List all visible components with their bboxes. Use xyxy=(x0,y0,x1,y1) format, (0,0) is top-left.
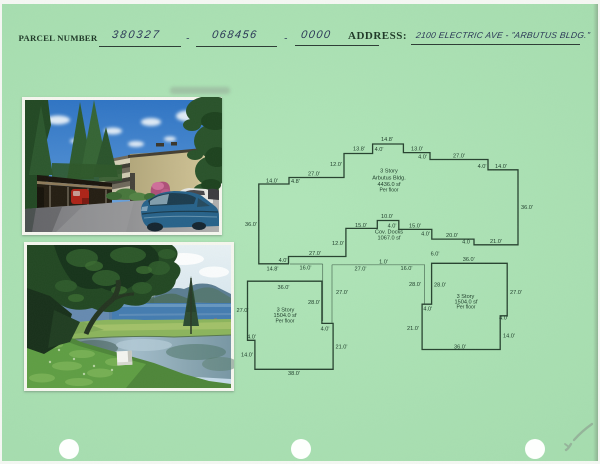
svg-text:27.0': 27.0' xyxy=(309,251,321,257)
svg-text:36.0': 36.0' xyxy=(454,345,466,351)
svg-text:38.0': 38.0' xyxy=(288,371,300,377)
svg-text:27.0': 27.0' xyxy=(336,290,348,296)
svg-text:1.0': 1.0' xyxy=(379,260,388,266)
svg-text:15.0': 15.0' xyxy=(355,223,367,229)
svg-text:13.0': 13.0' xyxy=(411,147,423,153)
svg-text:10.0': 10.0' xyxy=(381,214,393,220)
svg-text:4.0': 4.0' xyxy=(423,307,432,313)
svg-text:21.0': 21.0' xyxy=(407,326,419,332)
svg-text:Per floor: Per floor xyxy=(457,305,476,311)
svg-text:27.0': 27.0' xyxy=(237,308,249,314)
svg-text:4.0': 4.0' xyxy=(279,258,288,264)
svg-text:21.0': 21.0' xyxy=(336,345,348,351)
svg-text:4.0': 4.0' xyxy=(247,335,256,341)
svg-text:6.0': 6.0' xyxy=(431,252,440,258)
svg-text:4.0': 4.0' xyxy=(418,155,427,161)
svg-text:4.0': 4.0' xyxy=(478,164,487,170)
svg-text:1067.0 sf: 1067.0 sf xyxy=(377,236,400,242)
svg-text:21.0': 21.0' xyxy=(490,239,502,245)
svg-text:20.0': 20.0' xyxy=(446,233,458,239)
svg-text:36.0': 36.0' xyxy=(245,222,257,228)
svg-text:4.0': 4.0' xyxy=(421,232,430,238)
svg-text:4.0': 4.0' xyxy=(321,327,330,333)
svg-text:14.0': 14.0' xyxy=(241,353,253,359)
svg-text:12.0': 12.0' xyxy=(330,162,342,168)
svg-text:14.0': 14.0' xyxy=(266,179,278,185)
svg-text:28.0': 28.0' xyxy=(308,300,320,306)
svg-text:15.0': 15.0' xyxy=(409,224,421,230)
svg-text:36.0': 36.0' xyxy=(521,205,533,211)
svg-text:27.0': 27.0' xyxy=(355,267,367,273)
svg-text:16.0': 16.0' xyxy=(401,266,413,272)
svg-text:4.0': 4.0' xyxy=(499,316,508,322)
svg-text:14.0': 14.0' xyxy=(495,164,507,170)
svg-text:Per floor: Per floor xyxy=(276,319,295,325)
svg-text:16.0': 16.0' xyxy=(300,266,312,272)
svg-text:27.0': 27.0' xyxy=(510,290,522,296)
svg-text:36.0': 36.0' xyxy=(278,285,290,291)
svg-text:36.0': 36.0' xyxy=(463,257,475,263)
svg-text:4.0: 4.0 xyxy=(462,240,470,246)
svg-text:14.0': 14.0' xyxy=(503,334,515,340)
svg-text:14.8': 14.8' xyxy=(267,267,279,273)
svg-text:13.8': 13.8' xyxy=(353,147,365,153)
svg-text:28.0': 28.0' xyxy=(409,282,421,288)
svg-text:4.8': 4.8' xyxy=(291,179,300,185)
svg-text:28.0': 28.0' xyxy=(434,283,446,289)
svg-text:27.0': 27.0' xyxy=(308,172,320,178)
svg-text:12.0': 12.0' xyxy=(332,241,344,247)
svg-text:14.8': 14.8' xyxy=(381,137,393,143)
svg-text:4.0': 4.0' xyxy=(375,147,384,153)
svg-text:27.0': 27.0' xyxy=(453,154,465,160)
svg-text:3 Story: 3 Story xyxy=(380,169,398,175)
svg-text:Arbutus Bldg.: Arbutus Bldg. xyxy=(372,175,406,181)
svg-text:Per floor: Per floor xyxy=(380,187,399,193)
